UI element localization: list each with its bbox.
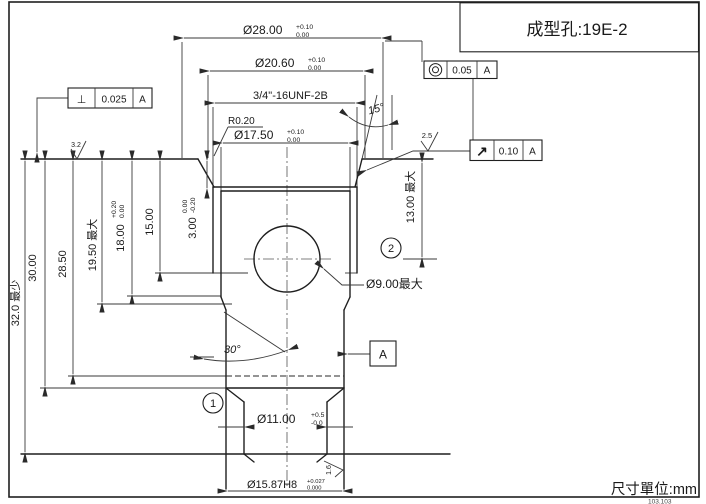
drawing-sheet: 成型孔:19E-2 <box>0 0 706 504</box>
dim-depth18-tol-upper: +0.20 <box>111 201 118 218</box>
dim-depth3-label: 3.00 <box>187 217 199 238</box>
dim-dia28-label: Ø28.00 <box>243 23 283 37</box>
dim-dia17-5-label: Ø17.50 <box>234 128 274 142</box>
surface-finish-bore: 1.6 <box>324 461 343 477</box>
dim-dia28: Ø28.00 +0.10 0.00 <box>243 23 313 39</box>
surface-finish-bore-value: 1.6 <box>326 465 333 475</box>
dim-dia11-tol-upper: +0.5 <box>311 412 325 419</box>
fcf-runout: ↗ 0.10 A <box>470 140 542 161</box>
dim-depth3-tol-upper: 0.00 <box>182 200 189 213</box>
dim-dia9-label: Ø9.00最大 <box>366 277 423 291</box>
dim-dia20-6-label: Ø20.60 <box>255 56 295 70</box>
part-outline <box>21 95 450 489</box>
datum-label: A <box>379 348 387 362</box>
corner-note: 103.103 <box>648 499 672 504</box>
dim-dia20-6-tol-lower: 0.00 <box>308 65 321 72</box>
gdt-frames: ⊥ 0.025 A 0.05 A ↗ 0.10 A A <box>68 61 542 366</box>
dim-depth3: 3.00 0.00 -0.20 <box>182 197 199 238</box>
concentricity-datum: A <box>484 66 491 77</box>
fcf-perpendicularity: ⊥ 0.025 A <box>68 88 152 108</box>
balloon-2: 2 <box>388 243 394 255</box>
dim-dia15-87-tol-upper: +0.027 <box>307 479 325 485</box>
runout-datum: A <box>529 147 536 158</box>
dim-depth3-tol-lower: -0.20 <box>190 197 197 213</box>
dim-depth19-5-label: 19.50 最大 <box>85 219 99 272</box>
dim-dia15-87-tol-lower: 0.000 <box>307 486 322 492</box>
surface-finish-top-value: 3.2 <box>71 142 81 149</box>
dim-depth30-label: 30.00 <box>27 254 39 282</box>
dim-dia17-5: Ø17.50 +0.10 0.00 <box>234 128 304 144</box>
dim-dia20-6: Ø20.60 +0.10 0.00 <box>255 56 325 72</box>
dim-thread-label: 3/4"-16UNF-2B <box>253 90 328 102</box>
dim-depth13-label: 13.00 最大 <box>403 171 417 224</box>
perpendicularity-value: 0.025 <box>101 95 126 106</box>
dim-dia17-5-tol-upper: +0.10 <box>287 129 304 136</box>
perpendicularity-icon: ⊥ <box>77 94 87 106</box>
dim-depth15-label: 15.00 <box>144 208 156 236</box>
dim-dia11-tol-lower: -0.0 <box>311 420 323 427</box>
drawing-canvas: 成型孔:19E-2 <box>0 0 706 504</box>
dim-dia28-tol-upper: +0.10 <box>296 24 313 31</box>
dim-depth18: 18.00 +0.20 0.00 <box>111 201 127 252</box>
balloon-1: 1 <box>210 398 216 410</box>
dim-dia15-87: Ø15.87H8 +0.027 0.000 <box>247 479 325 492</box>
fcf-concentricity: 0.05 A <box>424 61 497 79</box>
dim-dia11: Ø11.00 +0.5 -0.0 <box>257 412 325 427</box>
sheet-border: 成型孔:19E-2 <box>9 2 699 497</box>
perpendicularity-datum: A <box>139 95 146 106</box>
surface-finish-chamfer: 2.5 <box>421 131 438 151</box>
dim-depth18-tol-lower: 0.00 <box>119 205 126 218</box>
dim-angle30-label: 30° <box>224 344 241 356</box>
dim-depth18-label: 18.00 <box>115 224 127 252</box>
dim-dia15-87-label: Ø15.87H8 <box>247 479 297 491</box>
runout-value: 0.10 <box>499 147 519 158</box>
dim-dia11-label: Ø11.00 <box>257 412 296 426</box>
concentricity-value: 0.05 <box>452 66 472 77</box>
dim-dia20-6-tol-upper: +0.10 <box>308 57 325 64</box>
dim-depth32-label: 32.0 最少 <box>9 280 22 326</box>
runout-icon: ↗ <box>476 143 488 159</box>
datum-flag: A <box>370 341 396 366</box>
dim-radius-label: R0.20 <box>228 116 255 127</box>
surface-finish-chamfer-value: 2.5 <box>422 131 432 140</box>
centerlines <box>244 147 333 486</box>
drawing-title: 成型孔:19E-2 <box>526 20 627 39</box>
units-label: 尺寸單位:mm <box>611 481 697 498</box>
dim-depth28-5-label: 28.50 <box>57 250 69 278</box>
dim-dia28-tol-lower: 0.00 <box>296 32 309 39</box>
dim-dia17-5-tol-lower: 0.00 <box>287 137 300 144</box>
surface-finish-top: 3.2 <box>71 141 86 159</box>
balloons: 1 2 <box>203 238 401 413</box>
